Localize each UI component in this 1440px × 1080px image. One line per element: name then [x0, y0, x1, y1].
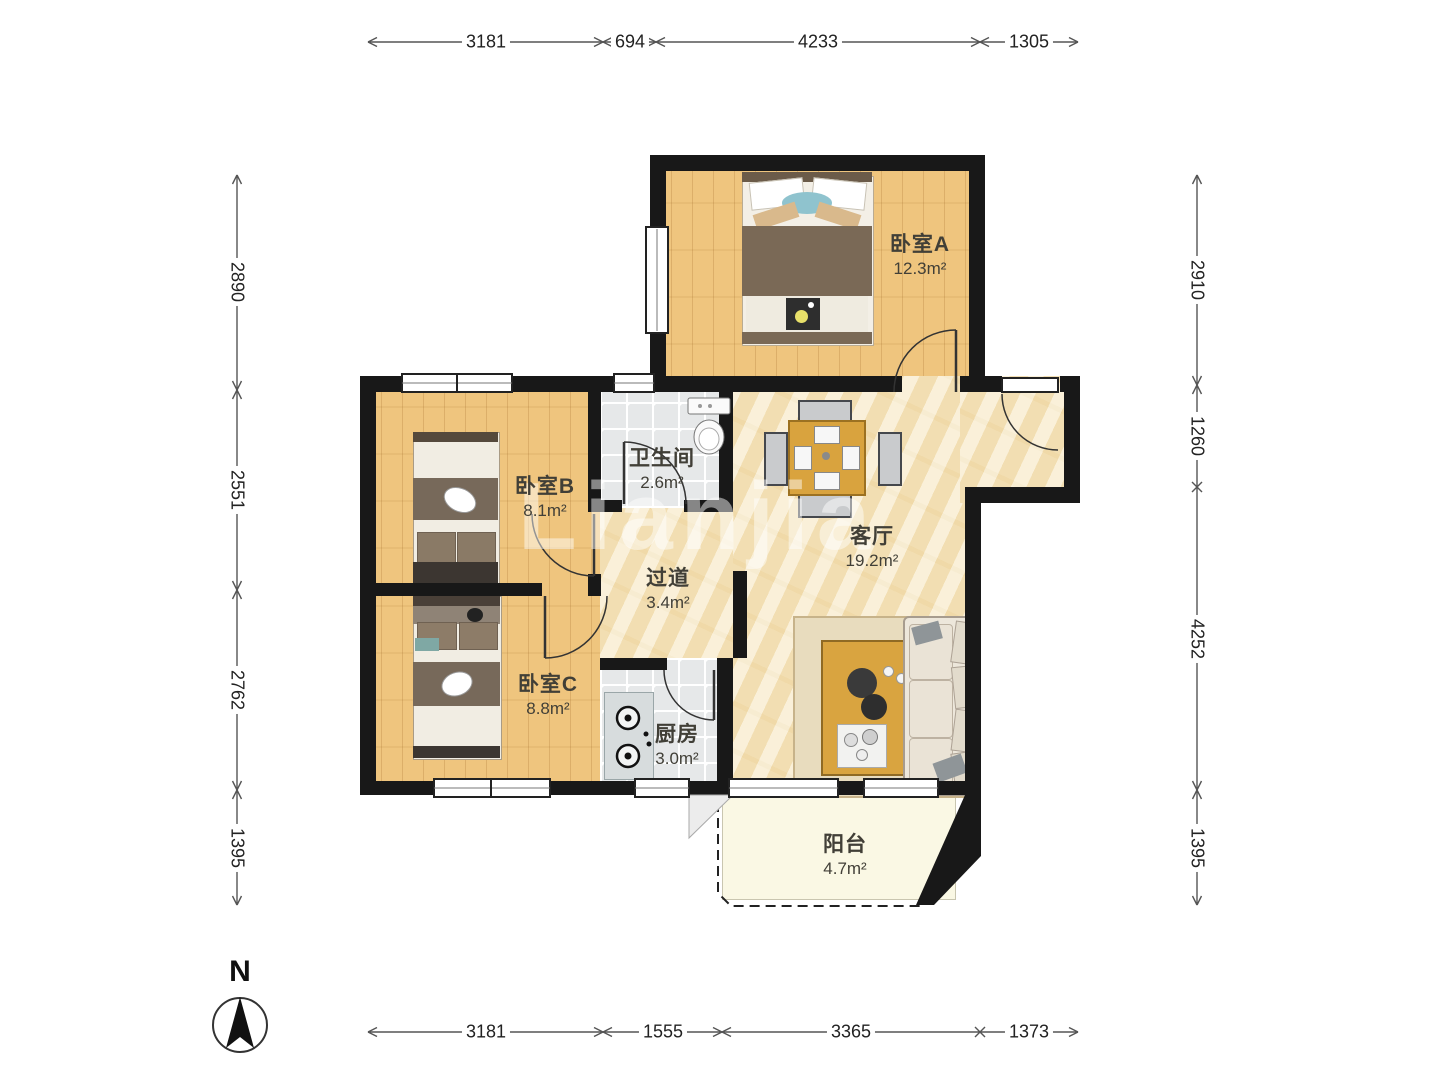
- coffee-table: [821, 640, 915, 776]
- room-label-living: 客厅 19.2m²: [846, 520, 899, 571]
- wall: [360, 781, 434, 795]
- wall: [512, 376, 614, 392]
- wall: [600, 658, 667, 670]
- room-name: 卧室A: [890, 228, 950, 258]
- dim-bottom-4: 1373: [1005, 1022, 1053, 1043]
- wall: [689, 781, 729, 795]
- dim-right-2: 1260: [1187, 412, 1208, 460]
- dim-left-4: 1395: [227, 824, 248, 872]
- dim-bottom-2: 1555: [639, 1022, 687, 1043]
- room-name: 卫生间: [629, 442, 695, 472]
- room-name: 客厅: [846, 520, 899, 550]
- room-name: 过道: [646, 562, 690, 592]
- dim-top-2: 694: [611, 32, 649, 53]
- wall: [938, 781, 981, 795]
- wall: [717, 658, 733, 781]
- room-area: 3.0m²: [655, 749, 699, 769]
- dim-bottom-1: 3181: [462, 1022, 510, 1043]
- wall: [965, 487, 1080, 503]
- room-entry-nook-floor: [960, 376, 1080, 503]
- compass-icon: [213, 997, 267, 1052]
- stove: [604, 692, 654, 780]
- room-label-bedroom-a: 卧室A 12.3m²: [890, 228, 950, 279]
- dim-right-4: 1395: [1187, 824, 1208, 872]
- wall: [965, 503, 981, 795]
- dim-left-3: 2762: [227, 666, 248, 714]
- dim-right-3: 4252: [1187, 615, 1208, 663]
- room-area: 3.4m²: [646, 593, 690, 613]
- room-area: 2.6m²: [629, 473, 695, 493]
- compass-north-label: N: [229, 955, 251, 989]
- wall: [650, 333, 666, 378]
- room-label-bathroom: 卫生间 2.6m²: [629, 442, 695, 493]
- dim-right-1: 2910: [1187, 256, 1208, 304]
- wall: [1064, 392, 1080, 495]
- room-area: 8.8m²: [518, 699, 578, 719]
- room-label-bedroom-c: 卧室C 8.8m²: [518, 668, 578, 719]
- room-name: 厨房: [655, 718, 699, 748]
- room-label-balcony: 阳台 4.7m²: [823, 828, 867, 879]
- wall: [654, 376, 902, 392]
- room-area: 8.1m²: [515, 501, 575, 521]
- room-area: 12.3m²: [890, 259, 950, 279]
- room-name: 卧室C: [518, 668, 578, 698]
- dining-chair-right: [878, 432, 902, 486]
- room-label-kitchen: 厨房 3.0m²: [655, 718, 699, 769]
- bed-single-c: [413, 596, 500, 758]
- dim-left-2: 2551: [227, 466, 248, 514]
- wall: [969, 155, 985, 378]
- room-label-hallway: 过道 3.4m²: [646, 562, 690, 613]
- wall: [733, 571, 747, 658]
- dim-left-1: 2890: [227, 258, 248, 306]
- wall: [650, 155, 985, 171]
- wall: [838, 781, 864, 795]
- room-name: 卧室B: [515, 470, 575, 500]
- wall: [960, 376, 1002, 392]
- bed-double-a: [742, 172, 872, 344]
- dim-top-3: 4233: [794, 32, 842, 53]
- dim-top-4: 1305: [1005, 32, 1053, 53]
- wall: [550, 781, 635, 795]
- wall: [360, 376, 402, 392]
- room-name: 阳台: [823, 828, 867, 858]
- wall: [360, 583, 542, 596]
- bed-single-b: [413, 432, 498, 583]
- floorplan: 卧室A 12.3m² 卧室B 8.1m² 卧室C 8.8m² 卫生间 2.6m²…: [0, 0, 1440, 1080]
- dim-top-1: 3181: [462, 32, 510, 53]
- wall: [650, 171, 666, 227]
- room-area: 4.7m²: [823, 859, 867, 879]
- wall: [1060, 376, 1080, 392]
- room-label-bedroom-b: 卧室B 8.1m²: [515, 470, 575, 521]
- dim-bottom-3: 3365: [827, 1022, 875, 1043]
- wall: [588, 574, 601, 596]
- room-area: 19.2m²: [846, 551, 899, 571]
